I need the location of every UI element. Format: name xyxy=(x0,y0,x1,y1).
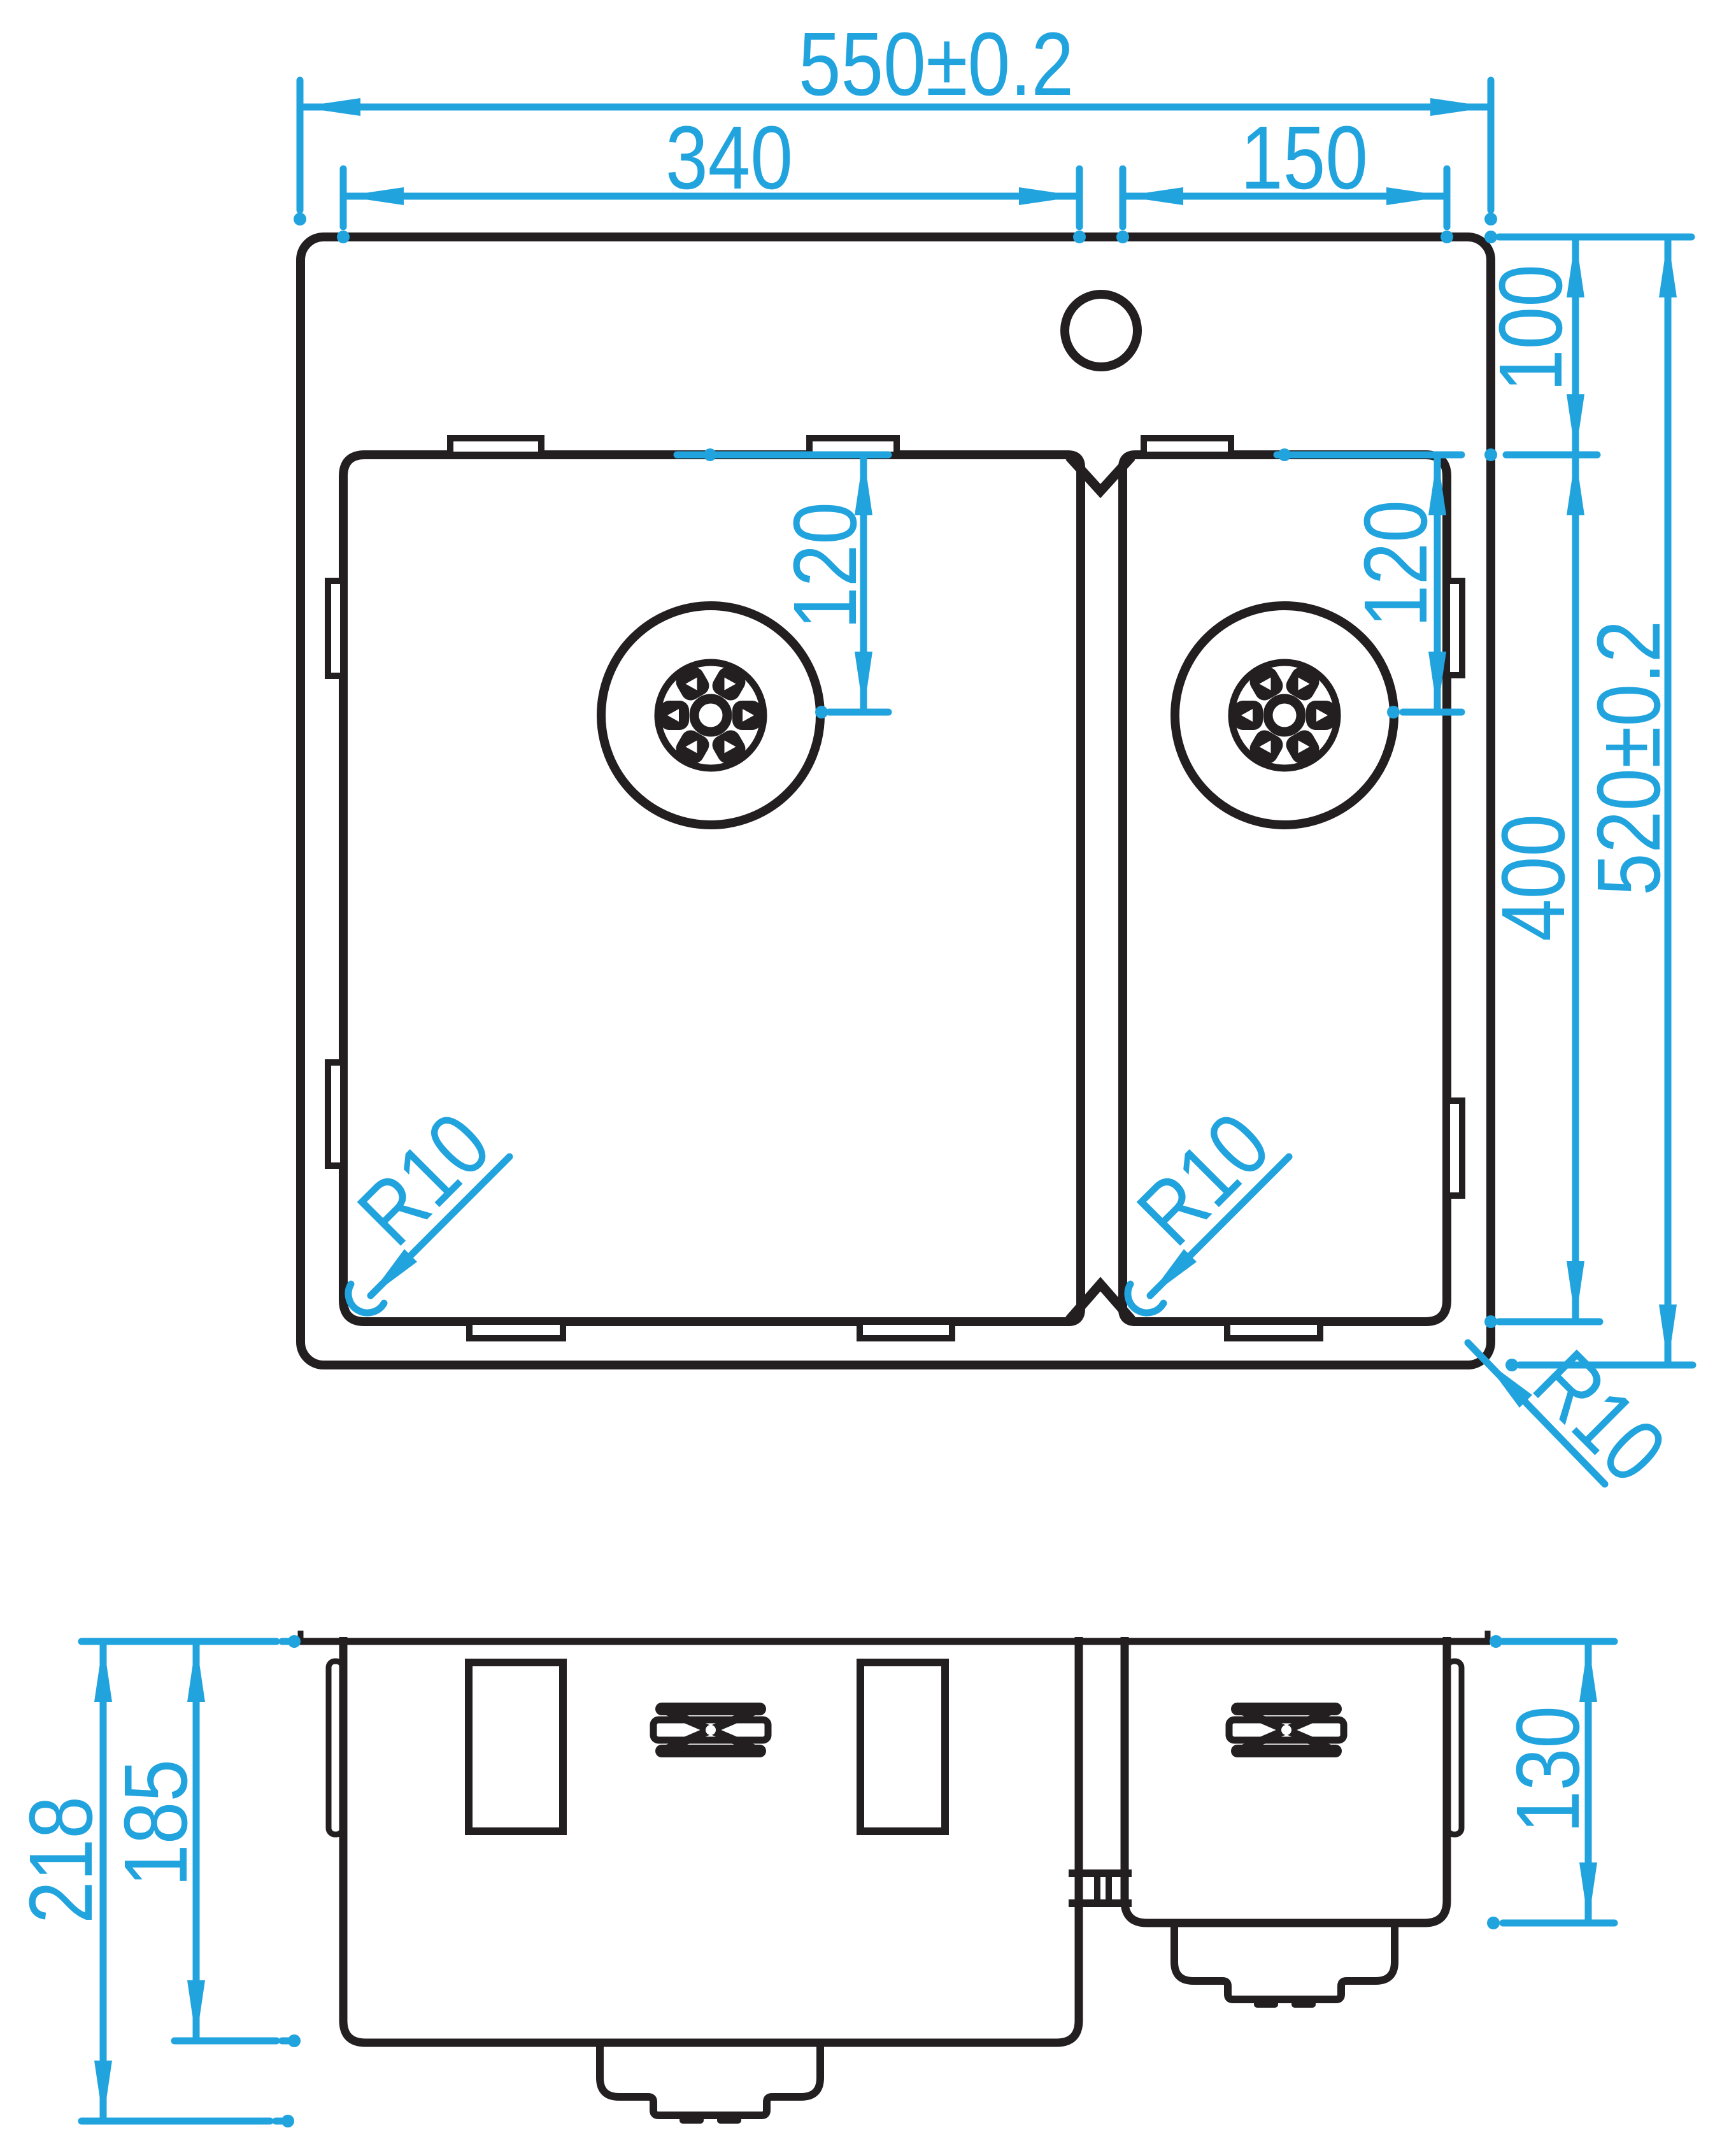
svg-text:R10: R10 xyxy=(1118,1094,1288,1264)
svg-text:400: 400 xyxy=(1483,814,1583,941)
svg-text:218: 218 xyxy=(11,1796,111,1924)
svg-text:130: 130 xyxy=(1498,1706,1598,1833)
svg-text:120: 120 xyxy=(1346,500,1446,627)
svg-text:120: 120 xyxy=(775,502,875,629)
svg-text:150: 150 xyxy=(1241,108,1368,208)
svg-text:520±0.2: 520±0.2 xyxy=(1579,620,1679,896)
svg-text:550±0.2: 550±0.2 xyxy=(799,14,1074,114)
svg-text:185: 185 xyxy=(106,1759,206,1887)
svg-text:R10: R10 xyxy=(1515,1331,1685,1501)
svg-text:R10: R10 xyxy=(339,1094,509,1264)
svg-text:100: 100 xyxy=(1481,264,1581,392)
svg-text:340: 340 xyxy=(665,108,793,208)
